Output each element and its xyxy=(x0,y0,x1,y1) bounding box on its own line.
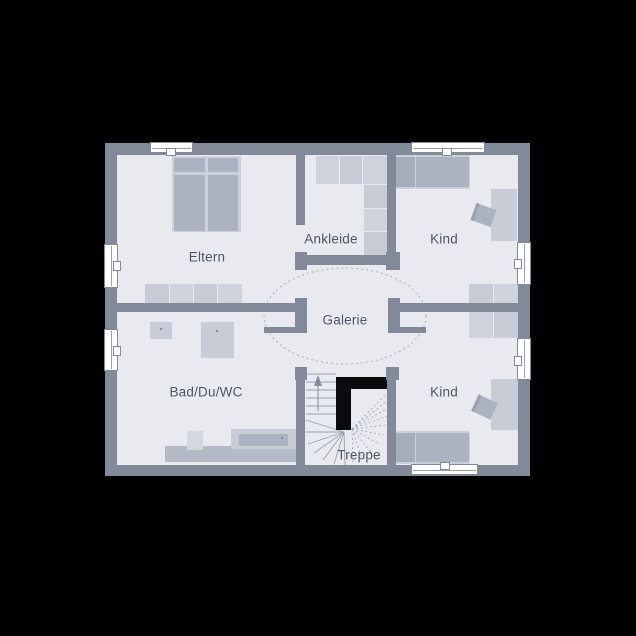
room-label-ankleide: Ankleide xyxy=(304,232,357,247)
room-label-bad: Bad/Du/WC xyxy=(169,385,242,400)
room-label-kind-bottom: Kind xyxy=(430,385,458,400)
room-label-eltern: Eltern xyxy=(189,250,225,265)
label-layer: Eltern Ankleide Kind Galerie Bad/Du/WC K… xyxy=(105,143,530,476)
room-label-kind-top: Kind xyxy=(430,232,458,247)
room-label-treppe: Treppe xyxy=(337,448,380,463)
room-label-galerie: Galerie xyxy=(323,313,368,328)
floorplan: Eltern Ankleide Kind Galerie Bad/Du/WC K… xyxy=(105,143,530,476)
floorplan-canvas: { "canvas": {"width": 636, "height": 636… xyxy=(0,0,636,636)
